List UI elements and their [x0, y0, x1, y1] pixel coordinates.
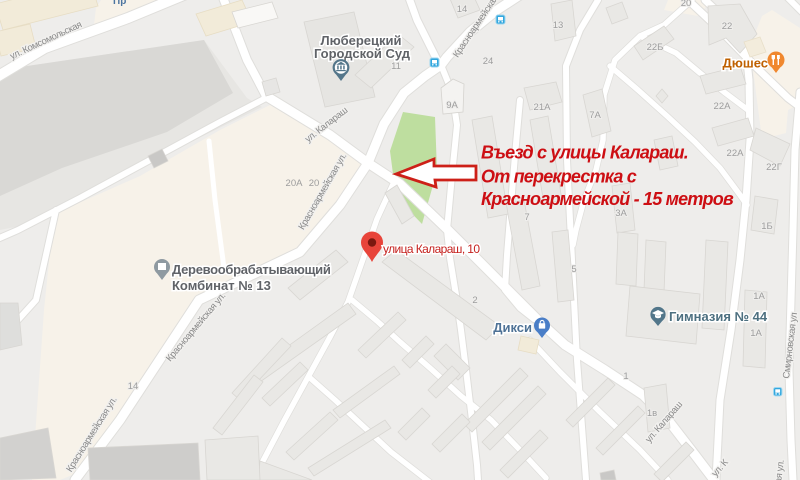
- svg-text:1в: 1в: [647, 408, 657, 419]
- svg-text:22: 22: [722, 21, 733, 32]
- svg-text:1Б: 1Б: [761, 221, 773, 232]
- svg-text:22A: 22A: [714, 101, 732, 112]
- svg-text:14: 14: [457, 4, 468, 15]
- svg-text:Дюшес: Дюшес: [723, 56, 769, 71]
- svg-text:22Г: 22Г: [766, 162, 782, 173]
- svg-text:7: 7: [524, 212, 529, 223]
- svg-text:2: 2: [472, 295, 477, 306]
- svg-text:3A: 3A: [615, 208, 627, 219]
- svg-text:1A: 1A: [750, 328, 762, 339]
- svg-text:20: 20: [309, 178, 320, 189]
- svg-text:Деревообрабатывающий: Деревообрабатывающий: [172, 262, 331, 277]
- svg-text:20A: 20A: [286, 178, 304, 189]
- svg-text:22A: 22A: [727, 148, 745, 159]
- svg-text:22Б: 22Б: [647, 42, 664, 53]
- svg-text:7A: 7A: [589, 110, 601, 121]
- svg-text:Комбинат № 13: Комбинат № 13: [172, 278, 271, 293]
- svg-text:1A: 1A: [753, 291, 765, 302]
- svg-text:улица Калараш, 10: улица Калараш, 10: [383, 242, 480, 256]
- svg-text:Пр: Пр: [113, 0, 126, 7]
- svg-text:5: 5: [571, 264, 576, 275]
- svg-text:11: 11: [391, 61, 401, 72]
- svg-text:9A: 9A: [446, 100, 458, 111]
- svg-text:Гимназия № 44: Гимназия № 44: [669, 309, 768, 324]
- svg-text:1: 1: [623, 371, 628, 382]
- svg-text:От перекрестка с: От перекрестка с: [481, 167, 637, 187]
- svg-text:14: 14: [128, 381, 139, 392]
- svg-text:20: 20: [681, 0, 692, 9]
- svg-text:21A: 21A: [534, 102, 552, 113]
- svg-text:13: 13: [553, 20, 564, 31]
- svg-text:24: 24: [483, 56, 494, 67]
- svg-text:Городской Суд: Городской Суд: [314, 46, 411, 61]
- svg-text:Дикси: Дикси: [493, 320, 532, 335]
- svg-text:Красноармейской - 15 метров: Красноармейской - 15 метров: [481, 189, 734, 209]
- svg-text:Въезд с улицы Калараш.: Въезд с улицы Калараш.: [481, 143, 688, 163]
